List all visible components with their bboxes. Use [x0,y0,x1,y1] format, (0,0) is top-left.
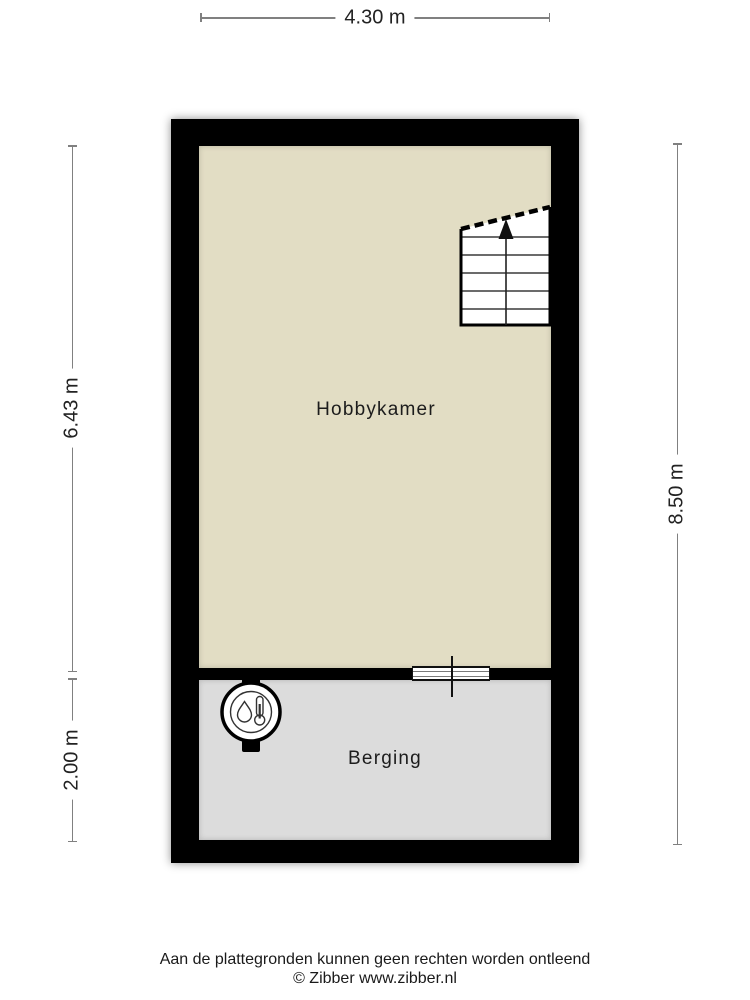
floorplan-sheet: 4.30 m 6.43 m 2.00 m 8.50 m [0,0,750,1000]
footer-disclaimer: Aan de plattegronden kunnen geen rechten… [0,950,750,969]
footer: Aan de plattegronden kunnen geen rechten… [0,950,750,988]
dimension-label-left-upper: 6.43 m [61,368,84,447]
room-label-hobbykamer: Hobbykamer [316,399,436,421]
window-center-tick [451,656,453,697]
stairs-up-icon [458,203,553,328]
footer-copyright: © Zibber www.zibber.nl [0,969,750,988]
dimension-label-left-lower: 2.00 m [61,720,84,799]
dimension-label-right-total: 8.50 m [666,454,689,533]
room-label-berging: Berging [348,748,422,770]
dimension-label-top-width: 4.30 m [335,7,414,30]
boiler-icon [219,671,283,753]
